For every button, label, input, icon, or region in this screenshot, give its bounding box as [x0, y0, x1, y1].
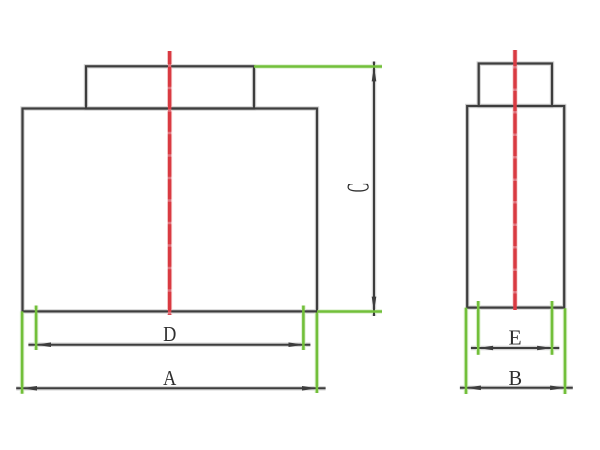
svg-text:D: D	[163, 323, 176, 347]
svg-text:C: C	[341, 183, 376, 192]
svg-text:E: E	[509, 326, 522, 350]
svg-text:B: B	[508, 366, 522, 391]
svg-text:A: A	[163, 367, 177, 391]
